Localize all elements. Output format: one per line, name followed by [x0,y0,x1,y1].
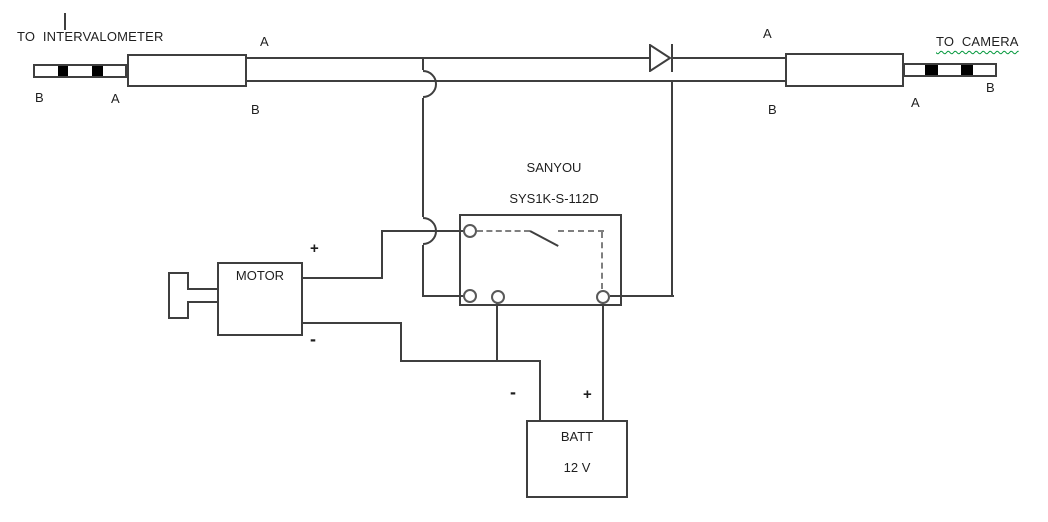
plug-right-band-icon [961,65,973,75]
motor-positive-wire [302,277,383,279]
coil-wire-vertical [422,98,424,217]
label-plug-left-b: B [35,91,44,105]
motor-positive-wire [381,230,383,279]
label-left-wire-b: B [251,103,260,117]
battery-label: BATT [526,430,628,444]
connector-body-right [785,53,904,87]
label-plug-right-a: A [911,96,920,110]
relay-model-label: SYS1K-S-112D [473,192,635,206]
battery-negative-sign: - [510,383,516,403]
motor-negative-wire [302,322,402,324]
label-right-wire-b: B [768,103,777,117]
battery-negative-wire [539,360,541,420]
wire-b [247,80,785,82]
plug-right [903,63,997,77]
wire-a-right-segment [673,57,785,59]
battery-voltage-label: 12 V [526,461,628,475]
caption-to-camera: TO CAMERA [936,35,1019,49]
circuit-diagram-canvas: TO INTERVALOMETER TO CAMERA SANYOU SYS1K… [0,0,1048,522]
coil-terminal2-wire [496,303,498,362]
motor-shaft [187,288,219,303]
label-left-wire-a: A [260,35,269,49]
motor-positive-sign: + [310,241,319,258]
relay-terminal-common [596,290,610,304]
motor-label: MOTOR [217,269,303,283]
crossover-hop-icon [409,70,437,98]
relay-contact-dashed-line [601,232,603,289]
coil-wire-vertical [422,58,424,70]
cursor-tick-mark [64,13,66,30]
motor-negative-wire [400,322,402,362]
motor-shaft-end [168,272,189,319]
coil-wire-vertical [422,245,424,297]
plug-left [33,64,127,78]
wire-a-left-segment [247,57,651,59]
relay-terminal-coil1 [463,289,477,303]
relay-terminal-no [463,224,477,238]
relay-brand-label: SANYOU [473,161,635,175]
diode-icon [649,44,675,72]
relay-terminal-coil2 [491,290,505,304]
battery-positive-sign: + [583,387,592,404]
label-right-wire-a: A [763,27,772,41]
label-plug-left-a: A [111,92,120,106]
plug-left-band-icon [92,66,103,76]
caption-to-intervalometer: TO INTERVALOMETER [17,30,164,44]
motor-negative-sign: - [310,330,316,350]
label-plug-right-b: B [986,81,995,95]
motor-positive-wire [382,230,464,232]
relay-contact-dashed-line [477,230,530,232]
plug-right-band-icon [925,65,938,75]
connector-body-left [127,54,247,87]
switch-wire-vertical [671,80,673,297]
plug-left-band-icon [58,66,68,76]
relay-contact-dashed-line [558,230,604,232]
battery-positive-wire [602,303,604,420]
negative-bus-wire [400,360,541,362]
